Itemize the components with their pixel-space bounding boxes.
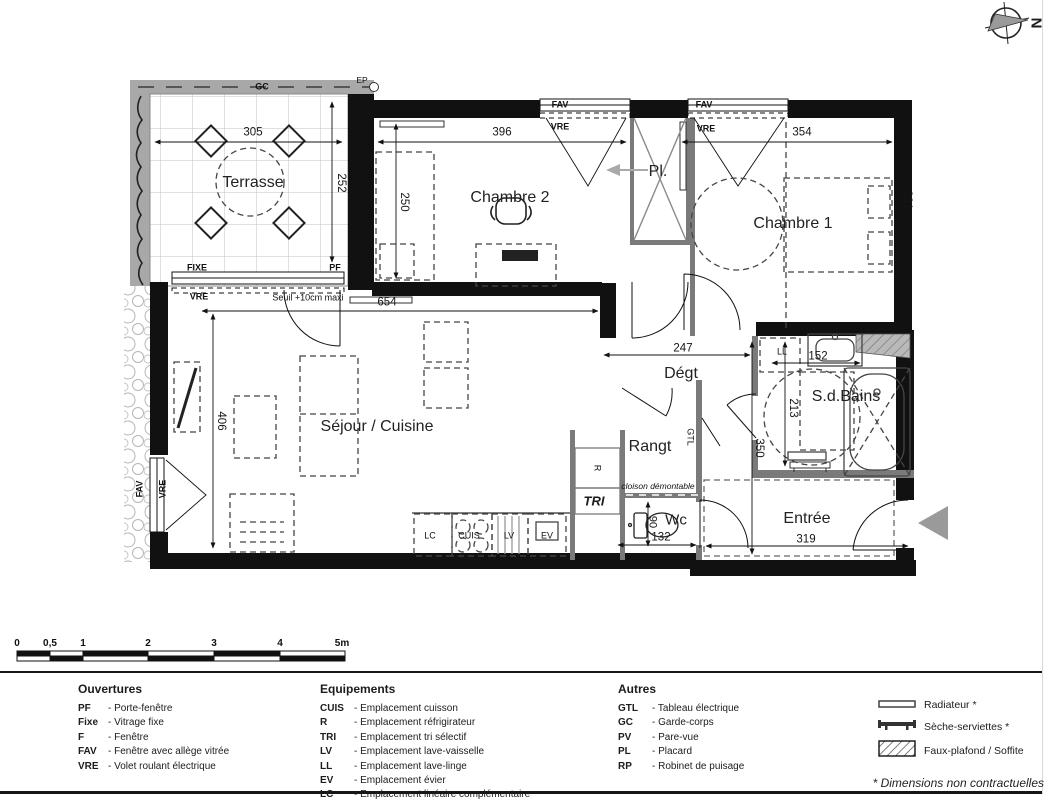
scale-1: 1: [80, 639, 86, 649]
room-label-degt: Dégt: [664, 366, 698, 382]
footnote: * Dimensions non contractuelles: [873, 776, 1044, 790]
scale-bar: [17, 651, 345, 661]
legend-item: F- Fenêtre: [78, 731, 313, 745]
scale-0: 0: [14, 639, 20, 649]
scale-0-5: 0,5: [43, 639, 57, 649]
dim-132: 132: [651, 532, 670, 544]
lv-label: LV: [504, 532, 514, 541]
scale-5m: 5m: [335, 639, 349, 649]
legend-item: EV- Emplacement évier: [320, 774, 580, 788]
door-rangt: [622, 388, 672, 416]
seuil-label: Seuil +10cm maxi: [272, 294, 343, 303]
legend-item: TRI- Emplacement tri sélectif: [320, 731, 580, 745]
placard-symbol: [606, 118, 686, 240]
room-label-rangt: Rangt: [629, 439, 672, 455]
fridge-label: R: [593, 465, 602, 472]
dim-350: 350: [752, 438, 764, 457]
vre-label-chambre2: VRE: [551, 123, 570, 132]
door-gtl: [702, 418, 720, 446]
dim-152: 152: [808, 351, 827, 363]
placard-arrow-icon: [606, 164, 620, 176]
dim-354: 354: [792, 127, 811, 139]
legend-item: VRE- Volet roulant électrique: [78, 760, 313, 774]
false-ceiling-icon: [878, 739, 924, 764]
scale-4: 4: [277, 639, 283, 649]
sofa: [230, 494, 294, 552]
fixe-label: FIXE: [187, 264, 207, 273]
fav-label-chambre2: FAV: [552, 101, 569, 110]
legend-column-ouvertures: Ouvertures PF- Porte-fenêtre Fixe- Vitra…: [78, 682, 313, 774]
dim-654: 654: [377, 297, 396, 309]
ll-label: LL: [777, 348, 787, 357]
dim-321: 321: [900, 190, 912, 209]
radiator-icon: [878, 696, 924, 714]
entrance-arrow-icon: [918, 506, 948, 540]
north-arrow-icon: [985, 2, 1029, 44]
ep-label: EP: [356, 76, 367, 85]
dim-305: 305: [243, 127, 262, 139]
dim-396: 396: [492, 127, 511, 139]
legend-item: GTL- Tableau électrique: [618, 702, 838, 716]
door-wc: [700, 500, 748, 548]
fav-label-chambre1: FAV: [696, 101, 713, 110]
armchair-1: [424, 322, 468, 362]
ev-label: EV: [541, 532, 553, 541]
room-label-sdb: S.d.Bains: [812, 389, 880, 405]
gc-label: GC: [255, 83, 269, 92]
door-entree: [853, 500, 908, 550]
legend-item: Fixe- Vitrage fixe: [78, 716, 313, 730]
legend-item: LV- Emplacement lave-vaisselle: [320, 745, 580, 759]
shutter-vre-chambre1: [688, 113, 788, 118]
legend-column-equipements: Equipements CUIS- Emplacement cuisson R-…: [320, 682, 580, 800]
legend-title: Autres: [618, 682, 838, 696]
dining-table: [300, 356, 358, 476]
vre-label-terrasse: VRE: [190, 293, 209, 302]
room-label-chambre2: Chambre 2: [470, 190, 549, 206]
tri-label: TRI: [584, 495, 605, 508]
legend-item: LC- Emplacement linéaire complémentaire: [320, 788, 580, 800]
north-label: N: [1029, 18, 1044, 29]
tv-icon: [178, 368, 196, 428]
vre-label-chambre1: VRE: [697, 125, 716, 134]
room-label-terrasse: Terrasse: [222, 175, 283, 191]
lc-label: LC: [424, 532, 436, 541]
dim-250: 250: [397, 192, 409, 211]
bed-chambre2: [376, 152, 434, 280]
dim-319: 319: [796, 534, 815, 546]
legend-item: PV- Pare-vue: [618, 731, 838, 745]
legend-item: R- Emplacement réfrigirateur: [320, 716, 580, 730]
room-label-placard: Pl.: [649, 164, 668, 180]
scale-2: 2: [145, 639, 151, 649]
towel-dryer-icon: [878, 718, 924, 736]
floorplan-page: GC EP Terrasse 305 252 FIXE PF VRE Seuil…: [0, 0, 1056, 800]
legend-symbol-towel-dryer: Sèche-serviettes *: [878, 716, 1024, 738]
legend-item: CUIS- Emplacement cuisson: [320, 702, 580, 716]
legend-title: Equipements: [320, 682, 580, 696]
window-swing-sejour: [166, 460, 206, 530]
legend-item: PF- Porte-fenêtre: [78, 702, 313, 716]
legend-item: RP- Robinet de puisage: [618, 760, 838, 774]
gtl-label: GTL: [686, 428, 695, 446]
shutter-vre-chambre2: [540, 113, 630, 118]
floorplan-drawing: [0, 0, 1056, 800]
legend-symbols: Radiateur * Sèche-serviettes * Faux-plaf…: [878, 694, 1024, 764]
legend-item: LL- Emplacement lave-linge: [320, 760, 580, 774]
radiator-chambre2: [380, 121, 444, 127]
side-table: [234, 396, 276, 458]
fav-label-sejour: FAV: [136, 481, 145, 498]
legend-column-autres: Autres GTL- Tableau électrique GC- Garde…: [618, 682, 838, 774]
gravel-strip: [124, 286, 150, 562]
rainwater-pipe: [370, 83, 379, 92]
radiator-chambre1: [680, 122, 686, 190]
legend-item: GC- Garde-corps: [618, 716, 838, 730]
dim-252: 252: [334, 173, 346, 192]
dim-213: 213: [786, 398, 798, 417]
pf-label: PF: [329, 264, 341, 273]
room-label-chambre1: Chambre 1: [753, 216, 832, 232]
legend-item: PL- Placard: [618, 745, 838, 759]
doors: [284, 274, 908, 550]
room-label-wc: Wc: [665, 513, 687, 528]
door-chambre2: [632, 282, 688, 338]
cuis-label: CUIS: [458, 532, 480, 541]
cloison-label: cloison démontable: [621, 482, 694, 491]
vre-label-sejour: VRE: [159, 480, 168, 499]
dim-90: 90: [647, 516, 658, 528]
room-label-entree: Entrée: [783, 511, 830, 527]
scale-3: 3: [211, 639, 217, 649]
armchair-2: [424, 368, 468, 408]
legend-symbol-radiator: Radiateur *: [878, 694, 1024, 716]
room-label-sejour: Séjour / Cuisine: [321, 419, 434, 435]
legend-title: Ouvertures: [78, 682, 313, 696]
soffit-area: [856, 334, 910, 358]
legend-symbol-false-ceiling: Faux-plafond / Soffite: [878, 738, 1024, 764]
legend-item: FAV- Fenêtre avec allège vitrée: [78, 745, 313, 759]
dim-406: 406: [214, 411, 226, 430]
dim-247: 247: [673, 343, 692, 355]
